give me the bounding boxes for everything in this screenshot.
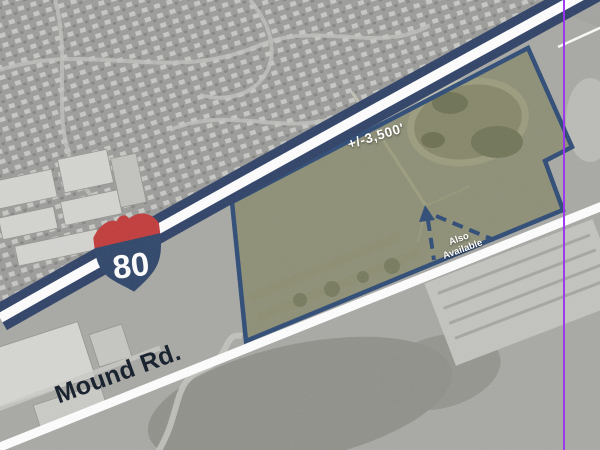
vertical-purple-boundary-line <box>563 0 565 450</box>
site-aerial-map: 80 +/-3,500' Also Available Mound Rd. <box>0 0 600 450</box>
